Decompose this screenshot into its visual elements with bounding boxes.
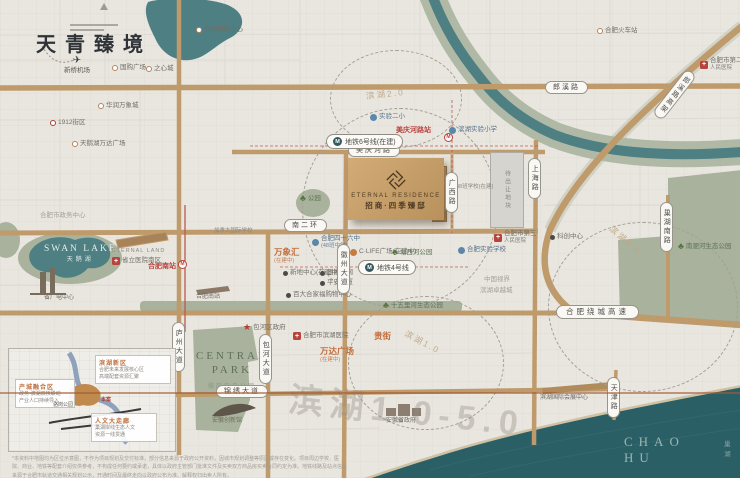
map-canvas: 滨湖1.0-5.0 待出让地块 ETERNAL RESIDENCE 招商·四季臻… — [0, 0, 740, 478]
dark-dot-icon — [286, 293, 291, 298]
disclaimer-text: *本资料中地图均为区位示意图，不作为项目规划及交付标准，部分信息来源于政府公开资… — [12, 455, 348, 478]
poi-label: 实验二小 — [379, 113, 405, 121]
poi-red-dot: 1912街区 — [50, 119, 85, 127]
poi-text: 公园 — [308, 195, 321, 203]
poi-text: 滨湖国际会展中心 — [540, 395, 588, 403]
inset-box-line: 巢湖岸线生态人文 — [95, 425, 153, 432]
planning-ring-label: 滨湖2.0 — [365, 86, 405, 102]
poi-orange-b: 万达广场(在建中) — [320, 346, 354, 364]
cross2-icon — [494, 234, 502, 242]
poi-faint: 合肥市政务中心 — [40, 212, 86, 220]
poi-blue-dot: 滨湖实验小学 — [449, 126, 497, 134]
poi-text: 中国视界 — [484, 276, 510, 284]
poi-tree: 南淝河生态公园 — [678, 241, 731, 253]
inset-box-line: 合肥未来发展核心区 — [99, 367, 167, 374]
inset-box-title: 产城融合区 — [19, 382, 71, 391]
dot-icon — [98, 103, 104, 109]
poi-small: 48班学校(在建) — [456, 184, 493, 191]
mcircle-icon — [444, 133, 453, 142]
blue-dot-icon — [370, 114, 377, 121]
poi-plane: 新桥机场 — [64, 54, 90, 75]
poi-mcircle — [178, 260, 189, 269]
poi-text: 实验二小 — [379, 113, 405, 121]
poi-label: 滨湖国际会展中心 — [540, 395, 588, 403]
poi-text: 南淝河生态公园 — [686, 243, 732, 251]
poi-label: 1912街区 — [58, 119, 85, 127]
poi-label: 万象汇 — [274, 247, 300, 258]
poi-cap: 省广电中心 — [44, 295, 74, 303]
inset-box-line: 高端配套资源汇聚 — [99, 374, 167, 381]
poi-text: 1912街区 — [58, 119, 85, 127]
poi-dot: 天鹅湖万达广场 — [72, 140, 126, 148]
poi-cross: 合肥市滨湖医院 — [293, 332, 349, 340]
dark-dot-icon — [320, 271, 325, 276]
orange-dot-icon — [350, 249, 357, 256]
blue-dot2-icon — [312, 239, 319, 246]
inset-box-binhu: 滨湖新区 合肥未来发展核心区 高端配套资源汇聚 — [95, 355, 171, 384]
planning-ring-label: 滨湖1.0 — [402, 328, 442, 357]
poi-tree: 塘西河公园 — [392, 247, 432, 259]
poi-text: 合肥市政务中心 — [40, 212, 86, 220]
poi-text: 安徽创新馆 — [212, 418, 242, 426]
poi-text: 合肥火车站 — [605, 27, 638, 35]
poi-label: 安徽省政府 — [386, 418, 416, 426]
poi-label: 滨湖实验小学 — [458, 126, 497, 134]
dark-dot-icon — [550, 235, 555, 240]
road-pill: 包河大道 — [259, 334, 272, 384]
tree-icon — [383, 300, 389, 312]
inset-box-culture: 人文大走廊 巢湖岸线生态人文 资源一线贯通 — [91, 413, 157, 442]
poi-label: 安徽创新馆 — [212, 418, 242, 426]
poi-text: 科创中心 — [557, 233, 583, 241]
poi-text: 之心城 — [154, 65, 174, 73]
poi-label: 美庆河路站 — [396, 126, 431, 135]
poi-label: 华润万象城 — [106, 102, 139, 110]
tree-icon — [392, 247, 398, 259]
road-pill: 巢湖南路 — [660, 202, 673, 252]
poi-label: 合肥南站 — [196, 294, 220, 302]
poi-text: 合肥实验学校 — [467, 246, 506, 254]
poi-text: 省立医院南区 — [122, 257, 161, 265]
poi-label: 之心城 — [154, 65, 174, 73]
poi-text: 合肥市第二人民医院 — [710, 57, 740, 73]
boundary-guide-line — [0, 392, 740, 394]
poi-blue-dot: 合肥实验学校 — [458, 246, 506, 254]
road-pill: 南二环 — [284, 219, 327, 232]
poi-text: 新桥机场 — [64, 67, 90, 75]
metro-pill: 地铁4号线 — [358, 260, 416, 275]
cross-icon — [293, 332, 301, 340]
poi-label: 滨湖卓越城 — [480, 287, 513, 295]
star-icon — [243, 322, 251, 334]
poi-text: 华润万象城 — [106, 102, 139, 110]
dot-icon — [196, 27, 202, 33]
poi-text: 省广电中心 — [44, 295, 74, 303]
poi-cross2: 合肥市第三人民医院 — [494, 230, 537, 246]
poi-text: 包河区政府 — [253, 324, 286, 332]
poi-label: 新桥机场 — [64, 67, 90, 75]
poi-sublabel: (在建中) — [274, 258, 300, 265]
poi-label: 公园 — [308, 195, 321, 203]
road-pill: 徽州大道 — [337, 244, 350, 294]
poi-dark-dot: 科创中心 — [550, 233, 583, 241]
poi-faint: 中国视界 — [484, 276, 510, 284]
poi-cap-en: ETERNAL LAND — [112, 248, 165, 255]
poi-label: 科创中心 — [557, 233, 583, 241]
poi-cap: 合肥南站 — [196, 294, 220, 302]
poi-label: 合肥实验学校 — [467, 246, 506, 254]
poi-text: 加拿大国际学校 — [214, 228, 253, 235]
poi-orange-b: 万象汇(在建中) — [274, 247, 300, 265]
road-pill: 郎溪路高架 — [652, 68, 697, 121]
planning-ring-label: 滨湖3.0 — [607, 223, 644, 257]
tree-icon — [300, 193, 306, 205]
poi-text: 万象汇(在建中) — [274, 247, 300, 265]
poi-text: 滨湖卓越城 — [480, 287, 513, 295]
metro-icon — [333, 137, 342, 146]
dot-icon — [72, 141, 78, 147]
poi-label: 贵街 — [374, 331, 391, 342]
poi-label: 中国视界 — [484, 276, 510, 284]
road-pill: 广西路 — [445, 172, 458, 213]
poi-label: 塘西河公园 — [400, 249, 433, 257]
metro-pill: 地铁6号线(在建) — [326, 134, 403, 149]
red-dot-icon — [50, 120, 56, 126]
poi-text: 合肥南站 — [196, 294, 220, 302]
cross2-icon — [700, 61, 708, 69]
poi-dot: 合肥火车站 — [597, 27, 638, 35]
poi-dot: 合肥银泰中心 — [196, 26, 243, 34]
poi-cap: 安徽省政府 — [386, 418, 416, 426]
road-pill: 郎溪路 — [545, 81, 588, 94]
poi-dot: 之心城 — [146, 65, 174, 73]
plane-icon — [73, 54, 81, 67]
poi-tree: 十五里河生态公园 — [383, 300, 443, 312]
inset-box-line: 资源一线贯通 — [95, 432, 153, 439]
poi-label: 南淝河生态公园 — [686, 243, 732, 251]
dot-icon — [146, 66, 152, 72]
cross-icon — [112, 257, 120, 265]
dot-icon — [112, 65, 118, 71]
poi-cap: 滨湖国际会展中心 — [540, 395, 588, 403]
road-pill: 合肥绕城高速 — [556, 305, 639, 319]
poi-label: 包河区政府 — [253, 324, 286, 332]
poi-label: ETERNAL LAND — [112, 248, 165, 255]
poi-label: 加拿大国际学校 — [214, 228, 253, 235]
dark-dot-icon — [320, 281, 325, 286]
poi-label: 万达广场 — [320, 346, 354, 357]
poi-text: ETERNAL LAND — [112, 248, 165, 255]
poi-label: 48班学校(在建) — [456, 184, 493, 191]
inset-tag-site: 本案 — [101, 396, 111, 403]
poi-label: 省广电中心 — [44, 295, 74, 303]
poi-faint: 滨湖卓越城 — [480, 287, 513, 295]
poi-redtext: 美庆河路站 — [396, 126, 431, 135]
poi-text: 天鹅湖万达广场 — [80, 140, 126, 148]
poi-text: 48班学校(在建) — [456, 184, 493, 191]
poi-tree: 公园 — [300, 193, 321, 205]
poi-small: 加拿大国际学校 — [214, 228, 253, 235]
poi-label: 十五里河生态公园 — [391, 302, 443, 310]
inset-tag-park: 骆岗公园 — [53, 401, 73, 408]
poi-text: 安徽省政府 — [386, 418, 416, 426]
dark-dot-icon — [283, 271, 288, 276]
poi-cross: 省立医院南区 — [112, 257, 161, 265]
road-pill: 上海路 — [528, 158, 541, 199]
inset-map: 滨湖新区 合肥未来发展核心区 高端配套资源汇聚 产城融合区 政务·滨湖双核联动 … — [8, 348, 176, 452]
poi-label: 合肥银泰中心 — [204, 26, 243, 34]
road-pill: 天津路 — [607, 377, 620, 418]
blue-dot-icon — [458, 247, 465, 254]
poi-blue-dot: 实验二小 — [370, 113, 405, 121]
poi-label: 合肥火车站 — [605, 27, 638, 35]
poi-sublabel: 人民医院 — [504, 238, 537, 245]
poi-text: 合肥市第三人民医院 — [504, 230, 537, 246]
poi-label: 省立医院南区 — [122, 257, 161, 265]
poi-text: 十五里河生态公园 — [391, 302, 443, 310]
poi-text: 合肥市滨湖医院 — [303, 332, 349, 340]
inset-box-title: 人文大走廊 — [95, 416, 153, 425]
dot-icon — [597, 28, 603, 34]
poi-label: 合肥市滨湖医院 — [303, 332, 349, 340]
poi-text: 塘西河公园 — [400, 249, 433, 257]
metro-icon — [365, 263, 374, 272]
poi-text: 万达广场(在建中) — [320, 346, 354, 364]
metro-label: 地铁6号线(在建) — [345, 137, 396, 147]
poi-sublabel: (在建中) — [320, 357, 354, 364]
poi-label: 天鹅湖万达广场 — [80, 140, 126, 148]
poi-text: 滨湖实验小学 — [458, 126, 497, 134]
poi-dot: 华润万象城 — [98, 102, 139, 110]
inset-box-title: 滨湖新区 — [99, 358, 167, 367]
poi-mcircle — [444, 133, 455, 142]
poi-text: 合肥银泰中心 — [204, 26, 243, 34]
poi-cross2: 合肥市第二人民医院 — [700, 57, 740, 73]
poi-label: 国购广场 — [120, 64, 146, 72]
poi-text: 美庆河路站 — [396, 126, 431, 135]
poi-star: 包河区政府 — [243, 322, 286, 334]
poi-cap: 安徽创新馆 — [212, 418, 242, 426]
poi-orange-b: 贵街 — [374, 331, 391, 342]
poi-sublabel: 人民医院 — [710, 65, 740, 72]
tree-icon — [678, 241, 684, 253]
poi-label: 合肥市政务中心 — [40, 212, 86, 220]
poi-text: 国购广场 — [120, 64, 146, 72]
poi-text: 贵街 — [374, 331, 391, 342]
metro-label: 地铁4号线 — [377, 263, 409, 273]
mcircle-icon — [178, 260, 187, 269]
poi-dot: 国购广场 — [112, 64, 146, 72]
